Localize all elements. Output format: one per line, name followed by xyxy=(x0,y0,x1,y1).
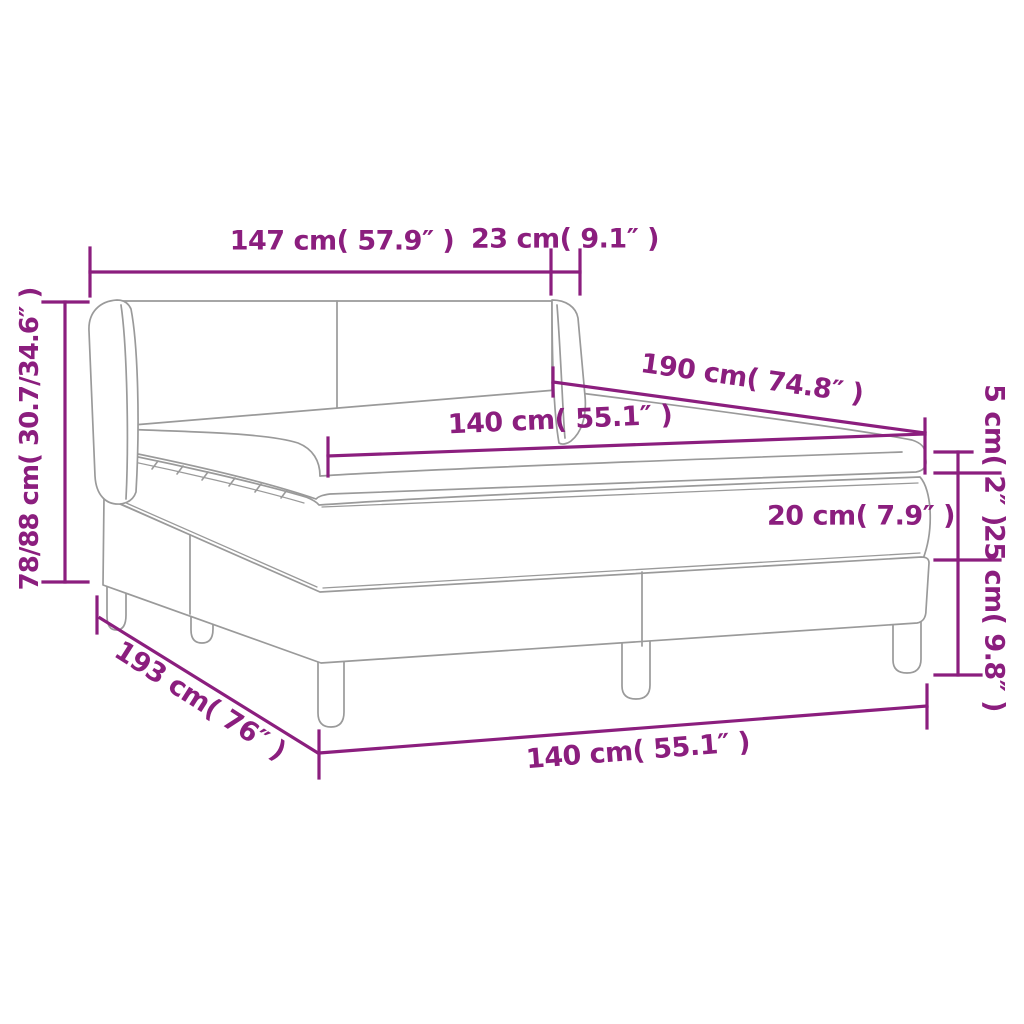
label-headboard-width: 147 cm( 57.9″ ) xyxy=(230,226,455,257)
label-topper-height: 5 cm( 2″ ) xyxy=(979,384,1010,526)
label-headboard-height: 78/88 cm( 30.7/34.6″ ) xyxy=(15,288,45,591)
leg-4 xyxy=(622,638,650,699)
product-dimension-diagram: 147 cm( 57.9″ ) 23 cm( 9.1″ ) 190 cm( 74… xyxy=(0,0,1024,1024)
label-mattress-height: 20 cm( 7.9″ ) xyxy=(767,501,955,532)
leg-5 xyxy=(893,618,921,673)
label-wing-depth: 23 cm( 9.1″ ) xyxy=(471,224,659,255)
headboard-left-wing xyxy=(89,300,138,504)
label-base-height: 25 cm( 9.8″ ) xyxy=(979,524,1010,712)
